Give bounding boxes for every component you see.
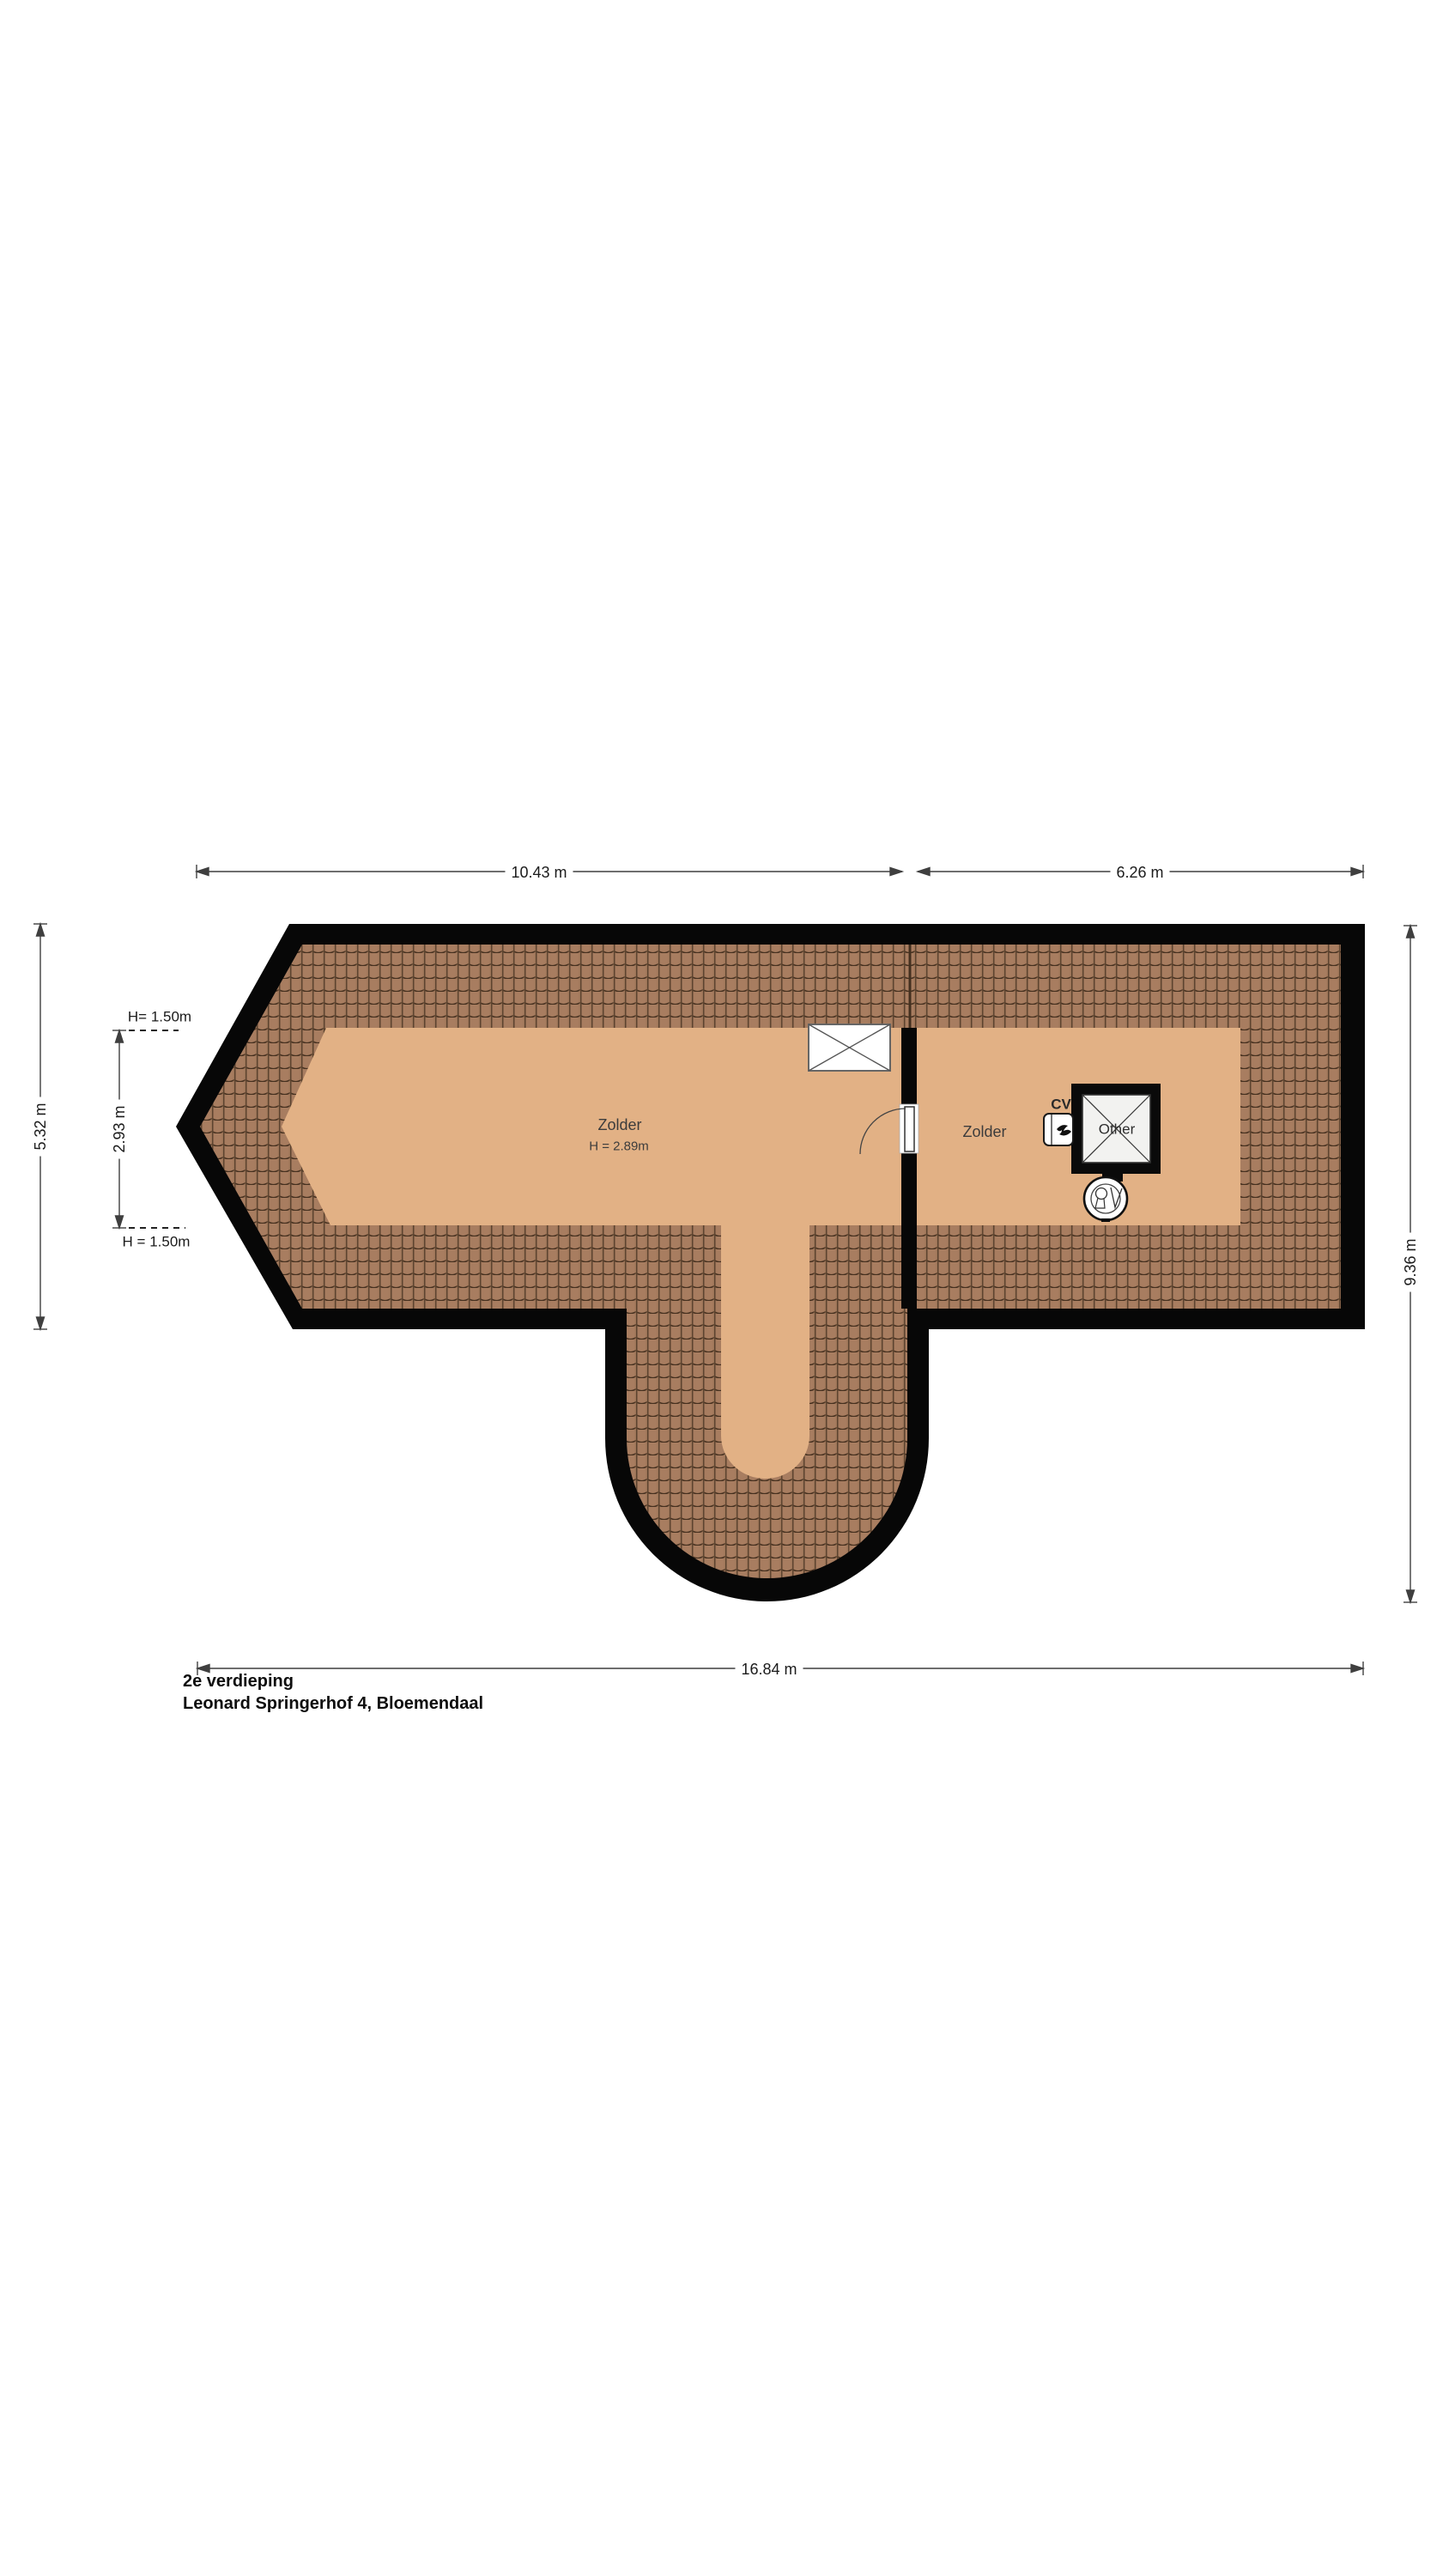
floor-plan-drawing (0, 0, 1449, 2576)
room-height-zolder-left: H = 2.89m (589, 1140, 649, 1153)
floorplan-page: 10.43 m 6.26 m 16.84 m 5.32 m 2.93 m 9.3… (0, 0, 1449, 2576)
cv-label: CV (1051, 1097, 1071, 1112)
dimension-top-right-label: 6.26 m (1110, 864, 1169, 881)
dimension-top-left-label: 10.43 m (505, 864, 573, 881)
dimension-left-inner-label: 2.93 m (111, 1099, 128, 1158)
dimension-bottom-label: 16.84 m (735, 1661, 803, 1678)
height-contour-lines (129, 1030, 185, 1228)
floor-title: 2e verdieping (183, 1673, 294, 1690)
dimension-left-outer-label: 5.32 m (32, 1097, 49, 1156)
door-leaf (905, 1107, 914, 1151)
room-label-zolder-left: Zolder (597, 1117, 641, 1133)
shaft-other-label: Other (1099, 1122, 1136, 1137)
dimension-right-label: 9.36 m (1402, 1232, 1419, 1291)
boiler-symbol (1084, 1177, 1127, 1222)
address-line: Leonard Springerhof 4, Bloemendaal (183, 1695, 483, 1712)
skylight (809, 1024, 890, 1071)
divider-wall-lower (901, 1153, 917, 1309)
height-150-top-label: H= 1.50m (124, 1009, 195, 1025)
divider-wall-upper (901, 1028, 917, 1104)
room-label-zolder-right: Zolder (962, 1124, 1006, 1139)
height-150-bottom-label: H = 1.50m (119, 1234, 194, 1250)
cv-unit (1044, 1114, 1073, 1145)
